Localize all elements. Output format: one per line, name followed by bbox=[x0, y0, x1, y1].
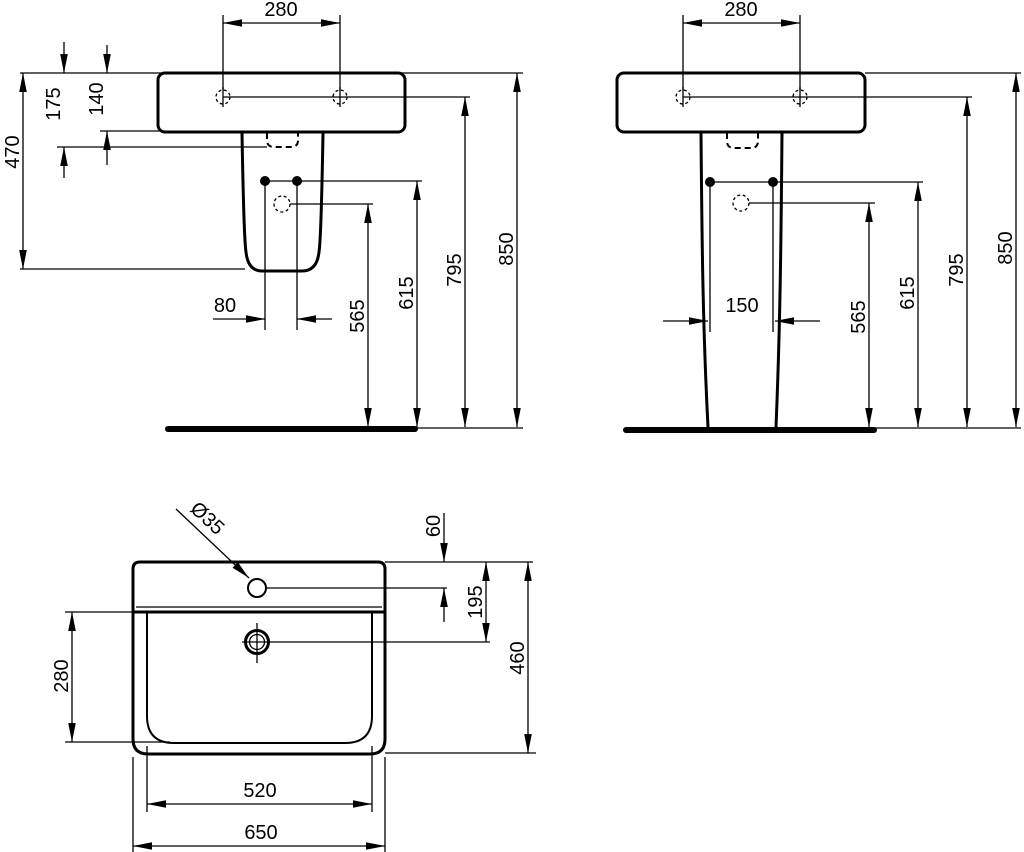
dim-label-565: 565 bbox=[848, 300, 870, 333]
dim-label-795: 795 bbox=[444, 253, 466, 286]
dimension-460: 460 bbox=[385, 562, 536, 753]
dim-label-60: 60 bbox=[423, 515, 445, 537]
dim-label-615: 615 bbox=[897, 276, 919, 309]
trap-outline bbox=[267, 133, 298, 147]
dim-label-470: 470 bbox=[2, 135, 24, 168]
diameter-callout: Ø35 bbox=[176, 498, 249, 578]
dim-label-280: 280 bbox=[264, 0, 297, 21]
plan-view: Ø35 60 195 460 280 bbox=[51, 498, 536, 852]
basin-outline bbox=[617, 73, 865, 132]
basin-outline bbox=[158, 73, 405, 132]
dimension-850: 850 bbox=[496, 73, 518, 427]
dim-label-140: 140 bbox=[86, 82, 108, 115]
washbasin-technical-drawing: 470 175 140 bbox=[0, 0, 1024, 852]
dimension-795: 795 bbox=[946, 97, 968, 427]
dimension-150: 150 bbox=[663, 295, 820, 321]
dimension-60: 60 bbox=[423, 513, 445, 622]
pedestal-outline bbox=[701, 133, 708, 427]
dim-label-615: 615 bbox=[396, 276, 418, 309]
drain-outlet-circle bbox=[274, 196, 290, 212]
dimension-615: 615 bbox=[396, 181, 418, 427]
dimension-850: 850 bbox=[995, 73, 1017, 427]
dimension-795: 795 bbox=[444, 97, 466, 427]
dim-label-80: 80 bbox=[214, 295, 236, 317]
dim-label-650: 650 bbox=[244, 822, 277, 844]
dimension-565: 565 bbox=[347, 204, 369, 427]
dimension-280: 280 bbox=[223, 0, 340, 90]
dim-label-195: 195 bbox=[465, 585, 487, 618]
dimension-195: 195 bbox=[385, 562, 533, 642]
side-view: 470 175 140 bbox=[2, 0, 523, 429]
dim-label-280: 280 bbox=[724, 0, 757, 21]
dimension-470: 470 bbox=[2, 73, 245, 269]
dim-label-520: 520 bbox=[243, 780, 276, 802]
dim-label-850: 850 bbox=[496, 232, 518, 265]
dimension-280: 280 bbox=[683, 0, 800, 90]
dim-label-280: 280 bbox=[51, 659, 73, 692]
trap-outline bbox=[727, 133, 758, 148]
dim-label-795: 795 bbox=[946, 253, 968, 286]
dimension-80: 80 bbox=[213, 295, 332, 319]
dim-label-175: 175 bbox=[43, 87, 65, 120]
pedestal-outline bbox=[242, 133, 323, 271]
dim-label-460: 460 bbox=[507, 641, 529, 674]
dimension-615: 615 bbox=[897, 182, 919, 427]
front-view: 280 150 565 615 795 bbox=[617, 0, 1021, 430]
dimension-520: 520 bbox=[147, 746, 372, 812]
pedestal-outline bbox=[776, 133, 782, 427]
dim-label-dia35: Ø35 bbox=[186, 498, 229, 540]
dimension-565: 565 bbox=[848, 203, 870, 427]
dimension-280: 280 bbox=[51, 612, 170, 742]
dim-label-850: 850 bbox=[995, 231, 1017, 264]
dimension-175: 175 bbox=[43, 42, 267, 178]
dim-label-565: 565 bbox=[347, 299, 369, 332]
faucet-hole bbox=[248, 579, 266, 597]
basin-plan-outline bbox=[133, 562, 385, 754]
dim-label-150: 150 bbox=[725, 295, 758, 317]
drain-outlet-circle bbox=[733, 195, 749, 211]
